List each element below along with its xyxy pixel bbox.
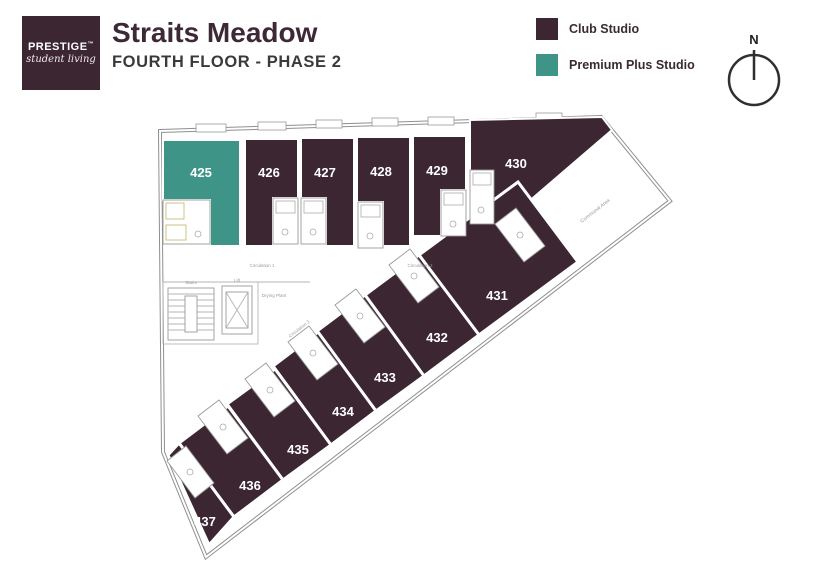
floorplan: 425 426 427 428 429 430 431 432 433 434 … [0,0,828,579]
room-436-label: 436 [239,478,261,493]
circulation1-label: Circulation 1 [249,263,275,268]
stairs-label: Stairs [185,280,197,285]
room-430-bathroom [470,170,494,224]
room-434-label: 434 [332,404,354,419]
window-bay [428,117,454,125]
room-425-bathroom [163,200,210,244]
room-433-label: 433 [374,370,396,385]
room-429-bathroom [441,190,466,236]
stair-rail [185,296,197,332]
room-428-bathroom [358,202,383,248]
room-429-label: 429 [426,163,448,178]
window-bay [316,120,342,128]
room-435-label: 435 [287,442,309,457]
room-427-bathroom [301,198,326,244]
room-426-bathroom [273,198,298,244]
drying-plant-label: Drying Plant [262,293,287,298]
room-425-label: 425 [190,165,212,180]
window-bay [258,122,286,130]
room-437-label: 437 [194,514,216,529]
room-427-label: 427 [314,165,336,180]
room-428-label: 428 [370,164,392,179]
window-bay [196,124,226,132]
window-bay [372,118,398,126]
circulation2-label: Circulation 2 [407,263,433,268]
room-432-label: 432 [426,330,448,345]
room-431-label: 431 [486,288,508,303]
lift-label: Lift [234,278,241,283]
room-430-label: 430 [505,156,527,171]
room-426-label: 426 [258,165,280,180]
